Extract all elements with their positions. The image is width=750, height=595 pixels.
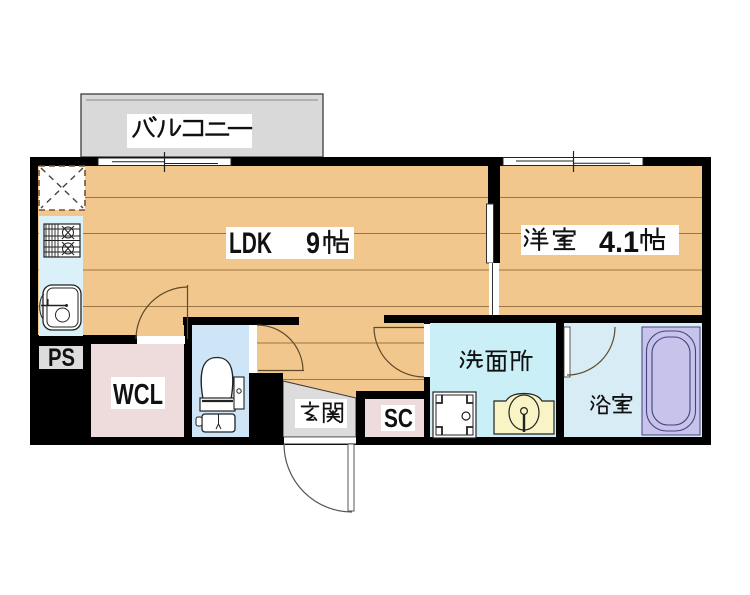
svg-text:WCL: WCL [113, 379, 163, 411]
svg-text:PS: PS [48, 344, 75, 372]
svg-text:4.1: 4.1 [599, 226, 639, 259]
svg-text:9: 9 [306, 227, 320, 260]
svg-text:SC: SC [384, 403, 413, 433]
svg-text:LDK: LDK [229, 227, 272, 260]
